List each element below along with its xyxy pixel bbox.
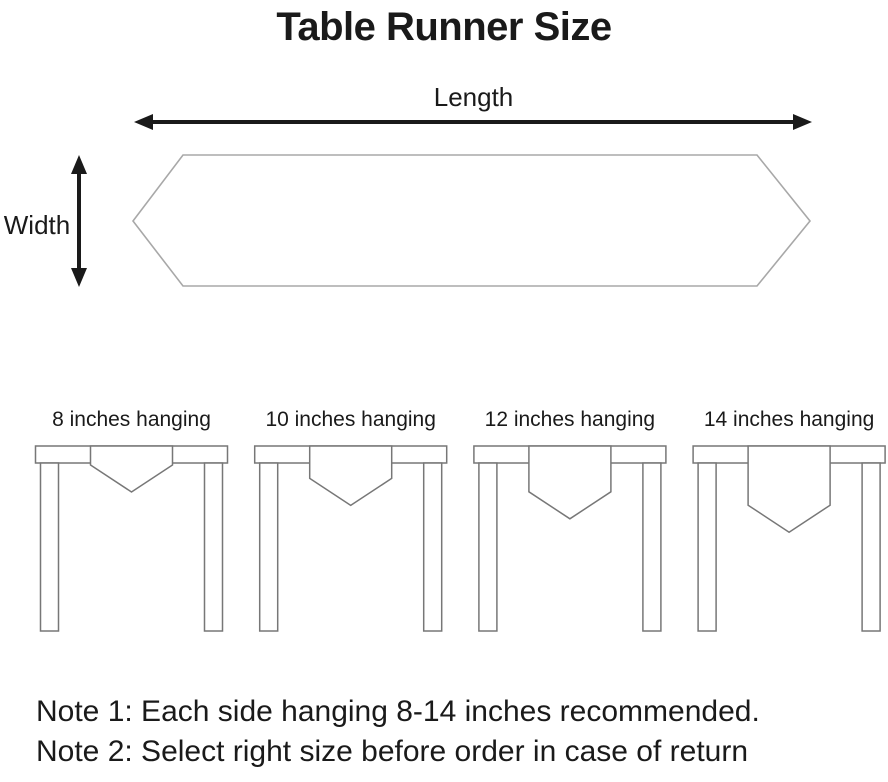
length-arrow	[134, 114, 812, 130]
hanging-option-label: 8 inches hanging	[22, 406, 242, 434]
table-left-leg	[41, 463, 59, 631]
table-runner-shape	[133, 155, 810, 286]
hanging-runner-shape	[529, 446, 611, 519]
length-arrow-left-head	[134, 114, 153, 130]
table-figure-12in	[474, 446, 666, 631]
tables-group	[36, 446, 886, 631]
width-arrow	[71, 155, 87, 287]
note-line-2: Note 2: Select right size before order i…	[36, 732, 876, 772]
diagram-canvas	[0, 0, 888, 782]
table-runner-size-infographic: Table Runner Size Length Width 8 inches …	[0, 0, 888, 782]
table-right-leg	[862, 463, 880, 631]
table-figure-14in	[693, 446, 885, 631]
hanging-runner-shape	[91, 446, 173, 492]
table-right-leg	[205, 463, 223, 631]
table-figure-8in	[36, 446, 228, 631]
length-arrow-right-head	[793, 114, 812, 130]
hanging-option-label: 12 inches hanging	[460, 406, 680, 434]
table-left-leg	[698, 463, 716, 631]
hanging-option-label: 10 inches hanging	[241, 406, 461, 434]
notes-block: Note 1: Each side hanging 8-14 inches re…	[36, 692, 876, 772]
hanging-option-label: 14 inches hanging	[679, 406, 888, 434]
note-line-1: Note 1: Each side hanging 8-14 inches re…	[36, 692, 876, 732]
table-figure-10in	[255, 446, 447, 631]
table-right-leg	[643, 463, 661, 631]
table-left-leg	[479, 463, 497, 631]
hanging-runner-shape	[310, 446, 392, 505]
hanging-runner-shape	[748, 446, 830, 532]
width-arrow-top-head	[71, 155, 87, 174]
table-right-leg	[424, 463, 442, 631]
table-left-leg	[260, 463, 278, 631]
width-arrow-bottom-head	[71, 268, 87, 287]
